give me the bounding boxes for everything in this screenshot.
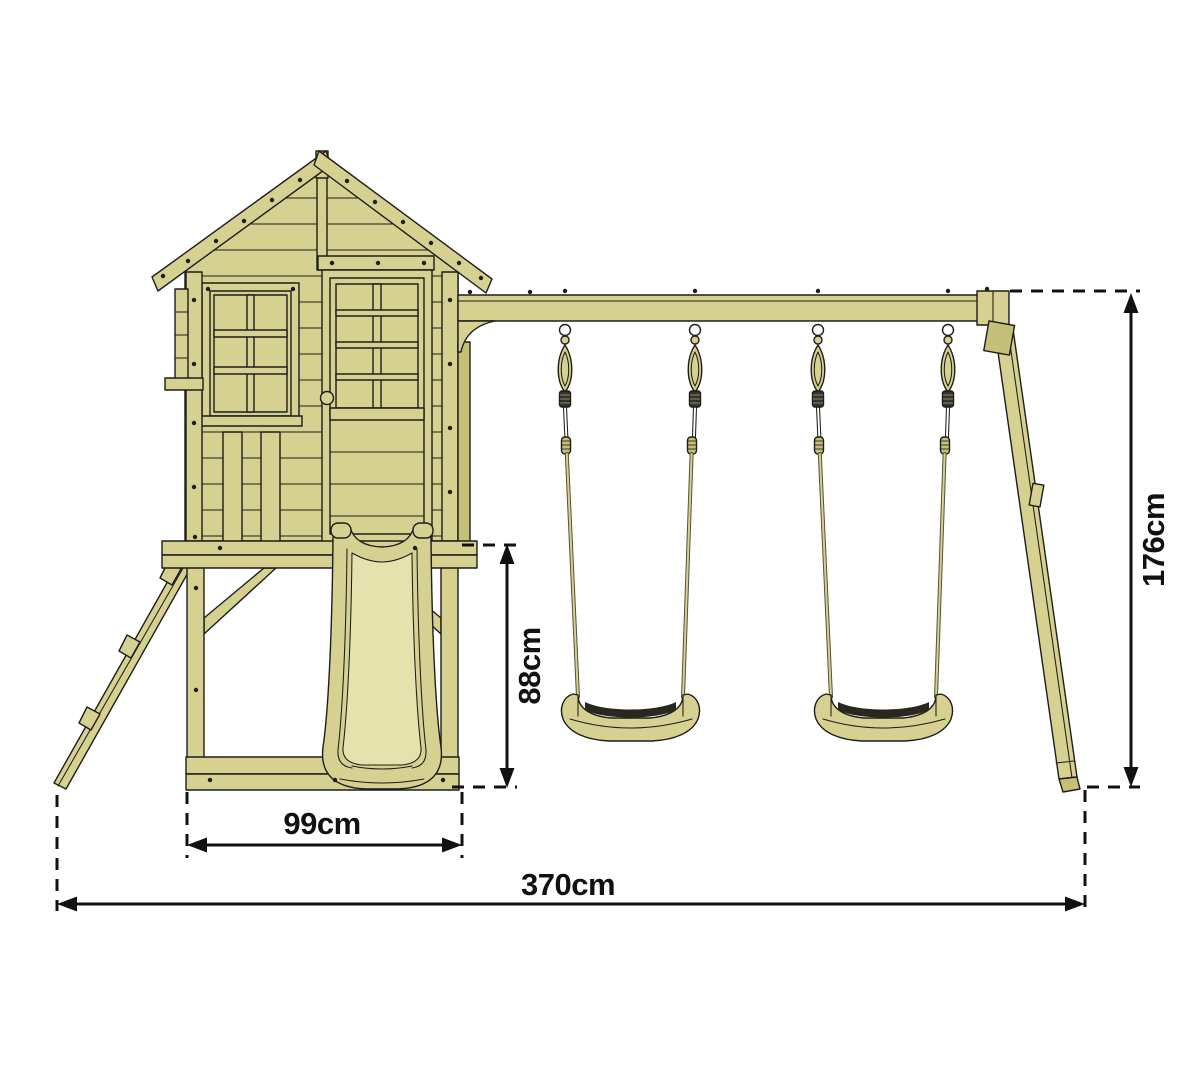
dimension-99: 99cm	[187, 792, 462, 858]
swing-beam	[458, 295, 1008, 321]
shutter-sill	[165, 378, 203, 390]
swing-1	[558, 325, 702, 742]
dim-label-88: 88cm	[512, 627, 547, 704]
playset-drawing: 88cm 99cm 370cm 176cm	[0, 0, 1200, 1071]
swing-2	[811, 325, 955, 742]
window-mullion	[247, 295, 254, 412]
window-rail-1	[214, 330, 287, 337]
angled-leg	[984, 321, 1080, 792]
slide	[323, 523, 442, 789]
leg-right	[441, 566, 458, 789]
corner-trim-right	[442, 272, 458, 541]
window-sill	[198, 416, 302, 426]
dim-label-99: 99cm	[283, 806, 360, 841]
dimension-370: 370cm	[57, 790, 1085, 912]
window-rail-2	[214, 367, 287, 374]
slide-post-left	[331, 523, 351, 538]
dimension-88: 88cm	[452, 544, 547, 858]
window	[198, 283, 302, 426]
slide-post-right	[413, 523, 433, 538]
brace-left	[204, 568, 276, 634]
door-mid-rail	[330, 408, 424, 420]
playhouse	[54, 151, 492, 790]
door	[318, 256, 434, 542]
dimension-diagram: 88cm 99cm 370cm 176cm	[0, 0, 1200, 1071]
leg-left	[187, 566, 204, 789]
leg-top-bracket	[984, 321, 1015, 355]
dim-label-176: 176cm	[1136, 493, 1171, 587]
gable-batten	[317, 165, 327, 270]
leg-foot	[1059, 777, 1080, 792]
ladder	[54, 549, 198, 789]
dim-label-370: 370cm	[521, 867, 615, 902]
swing-frame	[458, 291, 1080, 792]
door-handle	[321, 392, 334, 405]
rear-post	[458, 342, 470, 552]
